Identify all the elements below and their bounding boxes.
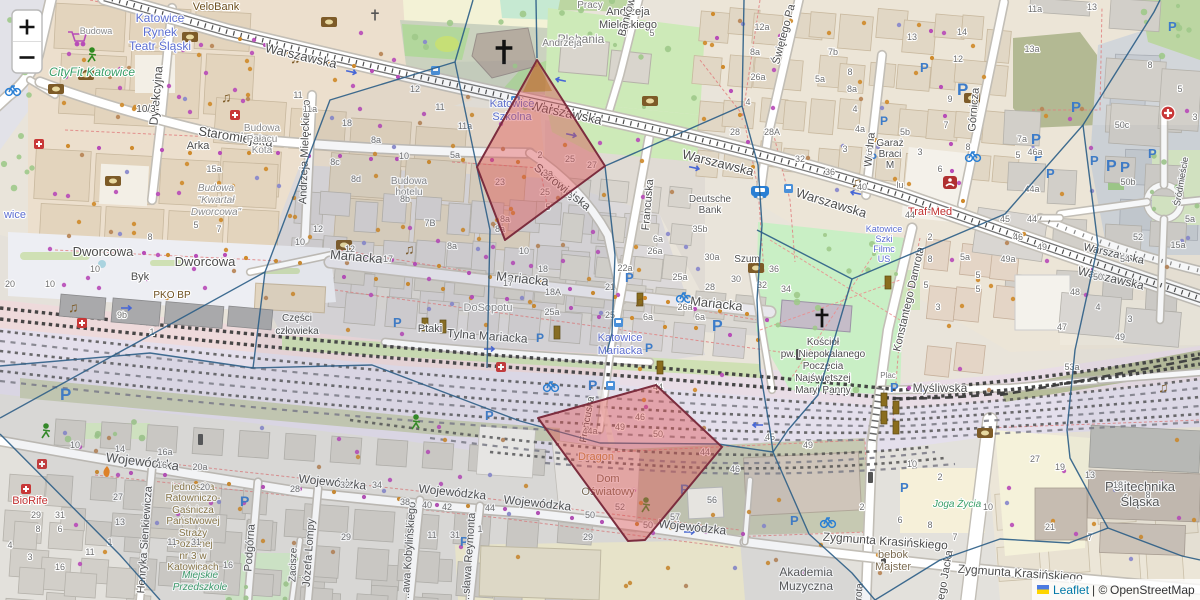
- svg-text:46: 46: [1013, 232, 1023, 242]
- svg-text:28: 28: [730, 127, 740, 137]
- svg-text:PKO BP: PKO BP: [153, 290, 191, 301]
- svg-text:OpenStreetMap: OpenStreetMap: [1110, 583, 1195, 597]
- svg-text:26a: 26a: [677, 302, 692, 312]
- svg-text:US: US: [878, 254, 891, 264]
- svg-text:31: 31: [55, 510, 65, 520]
- svg-text:26a: 26a: [750, 72, 765, 82]
- svg-text:| ©: | ©: [1092, 583, 1107, 597]
- svg-text:♫: ♫: [221, 89, 232, 105]
- svg-text:3: 3: [917, 147, 922, 157]
- svg-text:P: P: [920, 60, 929, 75]
- svg-text:44: 44: [1027, 214, 1037, 224]
- svg-text:13: 13: [1087, 2, 1097, 12]
- svg-text:Pałacu: Pałacu: [247, 134, 278, 145]
- svg-text:27: 27: [1030, 454, 1040, 464]
- svg-text:3: 3: [1192, 112, 1197, 122]
- svg-text:Maryi Panny: Maryi Panny: [795, 385, 851, 396]
- svg-text:Budowa: Budowa: [244, 123, 281, 134]
- svg-text:7: 7: [216, 224, 221, 234]
- svg-text:Myśliwska: Myśliwska: [913, 381, 968, 395]
- svg-text:22a: 22a: [617, 263, 632, 273]
- svg-text:7b: 7b: [828, 47, 838, 57]
- svg-text:P: P: [1046, 166, 1055, 181]
- svg-text:49: 49: [1037, 242, 1047, 252]
- svg-text:Katowice: Katowice: [136, 11, 185, 25]
- svg-text:M: M: [886, 160, 894, 171]
- svg-text:35b: 35b: [692, 224, 707, 234]
- svg-text:Bank: Bank: [699, 205, 723, 216]
- svg-text:6: 6: [937, 164, 942, 174]
- svg-text:3: 3: [842, 144, 847, 154]
- svg-text:16: 16: [55, 562, 65, 572]
- svg-text:5: 5: [649, 28, 654, 38]
- svg-text:Budowa: Budowa: [198, 183, 235, 194]
- svg-text:Kota: Kota: [252, 145, 273, 156]
- svg-text:9b: 9b: [117, 310, 127, 320]
- svg-text:5: 5: [867, 147, 872, 157]
- svg-text:6: 6: [897, 515, 902, 525]
- svg-text:3: 3: [935, 302, 940, 312]
- svg-text:4: 4: [852, 104, 857, 114]
- svg-text:47: 47: [1057, 322, 1067, 332]
- svg-text:P: P: [1031, 131, 1041, 148]
- svg-text:49: 49: [803, 440, 813, 450]
- svg-text:Arka: Arka: [187, 140, 211, 152]
- svg-text:8: 8: [927, 520, 932, 530]
- svg-text:Dworcowa": Dworcowa": [191, 207, 242, 218]
- svg-text:30: 30: [731, 274, 741, 284]
- svg-text:BioRife: BioRife: [12, 495, 47, 507]
- svg-text:5a: 5a: [815, 74, 825, 84]
- svg-text:11a: 11a: [303, 104, 317, 114]
- svg-text:29: 29: [31, 510, 41, 520]
- svg-text:Rynek: Rynek: [143, 25, 178, 39]
- svg-text:5: 5: [1177, 84, 1182, 94]
- svg-text:Dworcowa: Dworcowa: [175, 254, 236, 269]
- svg-text:9: 9: [947, 94, 952, 104]
- svg-text:7: 7: [943, 120, 948, 130]
- svg-text:pw. Niepokalanego: pw. Niepokalanego: [781, 349, 866, 360]
- svg-text:6a: 6a: [653, 234, 663, 244]
- svg-text:13a: 13a: [1024, 44, 1039, 54]
- svg-text:10: 10: [983, 502, 993, 512]
- svg-text:6a: 6a: [695, 312, 705, 322]
- svg-text:5: 5: [1015, 150, 1020, 160]
- svg-text:♫: ♫: [68, 299, 79, 315]
- svg-text:10: 10: [90, 264, 100, 274]
- svg-text:P: P: [1071, 99, 1081, 116]
- svg-text:15a: 15a: [206, 164, 221, 174]
- svg-text:5a: 5a: [960, 252, 970, 262]
- svg-text:"Kwartał: "Kwartał: [198, 195, 236, 206]
- svg-text:36: 36: [825, 167, 835, 177]
- svg-text:Teatr Śląski: Teatr Śląski: [129, 38, 191, 53]
- svg-text:10/3: 10/3: [136, 104, 156, 115]
- svg-text:10: 10: [907, 459, 917, 469]
- svg-text:wice: wice: [3, 209, 26, 221]
- svg-text:Poczęcia: Poczęcia: [803, 361, 844, 372]
- svg-text:49a: 49a: [1000, 254, 1015, 264]
- svg-text:8: 8: [847, 67, 852, 77]
- svg-text:Katowice: Katowice: [866, 224, 903, 234]
- svg-text:Leaflet: Leaflet: [1053, 583, 1090, 597]
- svg-text:5: 5: [193, 220, 198, 230]
- svg-text:lu: lu: [896, 180, 903, 190]
- svg-text:8a: 8a: [847, 84, 857, 94]
- svg-text:4a: 4a: [855, 124, 865, 134]
- svg-text:8a: 8a: [750, 47, 760, 57]
- svg-text:Szki: Szki: [875, 234, 892, 244]
- svg-text:P: P: [645, 341, 653, 355]
- svg-text:46a: 46a: [1027, 147, 1042, 157]
- svg-text:5b: 5b: [900, 127, 910, 137]
- svg-text:11: 11: [293, 90, 302, 100]
- svg-text:7a: 7a: [1017, 134, 1027, 144]
- svg-text:30a: 30a: [704, 252, 719, 262]
- svg-text:Andrzeja: Andrzeja: [542, 38, 582, 49]
- svg-text:34: 34: [781, 284, 791, 294]
- svg-text:Plac: Plac: [880, 371, 896, 380]
- svg-text:Szum: Szum: [734, 254, 760, 265]
- svg-text:25a: 25a: [672, 272, 687, 282]
- svg-text:6: 6: [57, 524, 62, 534]
- svg-text:19: 19: [1055, 462, 1065, 472]
- svg-text:8: 8: [1147, 60, 1152, 70]
- svg-text:Byk: Byk: [131, 271, 150, 283]
- svg-text:12: 12: [953, 54, 963, 64]
- svg-text:P: P: [880, 114, 888, 128]
- svg-text:40: 40: [857, 182, 867, 192]
- svg-text:11a: 11a: [1028, 4, 1042, 14]
- svg-text:7: 7: [952, 532, 957, 542]
- svg-text:Pracy: Pracy: [577, 0, 603, 11]
- svg-text:Garaż: Garaż: [876, 138, 903, 149]
- svg-text:44: 44: [905, 210, 915, 220]
- svg-text:26a: 26a: [647, 246, 662, 256]
- svg-text:14: 14: [957, 27, 967, 37]
- svg-text:28A: 28A: [764, 127, 780, 137]
- svg-text:Braci: Braci: [879, 149, 902, 160]
- svg-text:8: 8: [927, 254, 932, 264]
- svg-text:13: 13: [907, 32, 917, 42]
- svg-text:8: 8: [35, 524, 40, 534]
- svg-text:32: 32: [795, 154, 805, 164]
- svg-text:5: 5: [975, 284, 980, 294]
- svg-text:2: 2: [859, 502, 864, 512]
- svg-text:20: 20: [5, 279, 15, 289]
- svg-text:2: 2: [937, 472, 942, 482]
- svg-text:8: 8: [965, 142, 970, 152]
- svg-text:P: P: [712, 318, 723, 335]
- svg-text:P: P: [890, 380, 899, 395]
- svg-text:36: 36: [769, 264, 779, 274]
- svg-text:Filmc: Filmc: [873, 244, 895, 254]
- svg-text:Deutsche: Deutsche: [689, 194, 732, 205]
- svg-text:VeloBank: VeloBank: [193, 1, 240, 13]
- svg-text:21: 21: [1045, 522, 1055, 532]
- svg-text:48: 48: [1070, 287, 1080, 297]
- svg-text:CityFit Katowice: CityFit Katowice: [49, 65, 135, 79]
- svg-text:5: 5: [923, 280, 928, 290]
- svg-text:2: 2: [927, 232, 932, 242]
- svg-text:P: P: [900, 480, 909, 495]
- svg-text:4: 4: [745, 97, 750, 107]
- svg-text:Joga Życia: Joga Życia: [932, 498, 982, 510]
- svg-text:♫: ♫: [634, 293, 645, 309]
- svg-text:Dworcowa: Dworcowa: [73, 244, 134, 259]
- svg-text:P: P: [1168, 19, 1177, 34]
- svg-text:bebok: bebok: [878, 549, 908, 561]
- svg-text:4: 4: [7, 540, 12, 550]
- svg-text:10: 10: [45, 279, 55, 289]
- svg-text:3: 3: [27, 552, 32, 562]
- svg-text:11: 11: [85, 547, 94, 557]
- svg-text:Budowa: Budowa: [80, 26, 113, 36]
- svg-text:5: 5: [975, 270, 980, 280]
- svg-text:12a: 12a: [754, 22, 769, 32]
- svg-text:28: 28: [705, 282, 715, 292]
- svg-text:6a: 6a: [643, 312, 653, 322]
- svg-text:8: 8: [147, 232, 152, 242]
- svg-text:Majster: Majster: [875, 561, 911, 573]
